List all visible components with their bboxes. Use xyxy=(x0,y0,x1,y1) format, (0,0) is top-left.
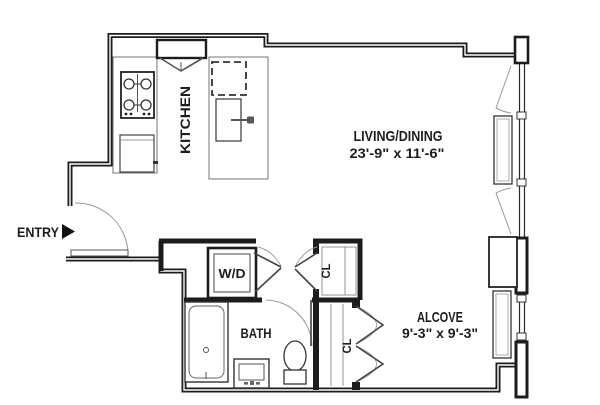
base-cabinet xyxy=(120,135,158,172)
window-wall xyxy=(489,37,528,397)
ptac-unit xyxy=(494,116,512,184)
refrigerator-icon xyxy=(157,40,206,71)
wd-double-doors xyxy=(254,247,281,292)
window-mullion xyxy=(517,333,526,340)
entry-hall-area xyxy=(72,206,157,256)
bathtub-icon xyxy=(185,302,228,382)
entry-door xyxy=(71,203,128,256)
vanity-sink-icon xyxy=(234,359,269,388)
column-enclosure xyxy=(489,237,517,287)
stove-icon xyxy=(121,72,154,118)
kitchen-sink-icon xyxy=(216,99,254,141)
window-mullion xyxy=(517,112,526,119)
window-mullion xyxy=(517,179,526,186)
living-dining-label: LIVING/DINING xyxy=(354,128,443,145)
bath-label: BATH xyxy=(241,326,272,341)
washer-dryer-label: W/D xyxy=(219,267,246,281)
living-dining-dimensions: 23'-9" x 11'-6" xyxy=(350,145,445,161)
ptac-unit xyxy=(493,291,511,358)
closet-upper-label: CL xyxy=(321,264,333,279)
structural-column xyxy=(516,342,527,397)
kitchen-island xyxy=(209,57,268,179)
alcove-dimensions: 9'-3" x 9'-3" xyxy=(402,325,478,341)
toilet-icon xyxy=(284,341,306,384)
closet-lower-label: CL xyxy=(342,339,354,354)
upper-cabinet-dashed xyxy=(212,62,246,95)
structural-column xyxy=(515,37,528,63)
alcove-label: ALCOVE xyxy=(417,309,463,326)
door-leaf xyxy=(71,250,128,256)
window-mullion xyxy=(517,295,526,302)
entry-label: ENTRY xyxy=(17,224,60,240)
door-jamb xyxy=(352,382,360,390)
floor-plan: ENTRY KITCHEN LIVING/DINING 23'-9" x 11'… xyxy=(0,0,600,405)
bath-door xyxy=(266,300,312,346)
entry-direction-icon xyxy=(62,224,75,239)
closet-lower-bifold-doors xyxy=(356,306,383,382)
kitchen-label: KITCHEN xyxy=(178,86,193,154)
